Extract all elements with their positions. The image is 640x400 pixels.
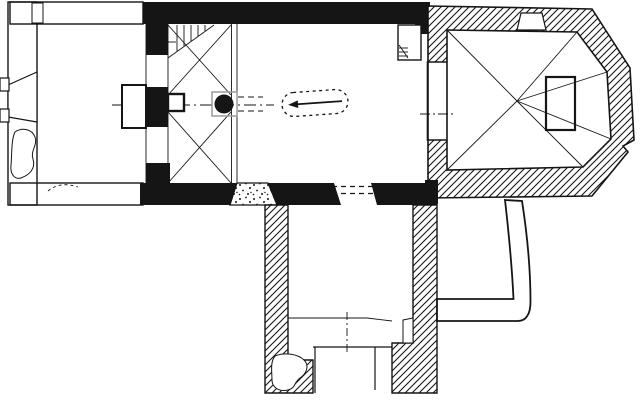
annex-north-opening	[32, 3, 43, 23]
church-floor-plan	[0, 0, 640, 400]
nave-south-wall-west	[140, 183, 237, 205]
chapel-east-recess	[403, 318, 413, 343]
masonry-blob	[11, 129, 36, 178]
corner-stair-niche	[398, 25, 421, 60]
portal-frame-south	[0, 109, 9, 122]
nave-south-door	[230, 183, 277, 205]
tower-arcade-pier-mid	[146, 87, 168, 127]
pier-respond-west	[122, 85, 146, 128]
nave-se-corner-pier	[425, 180, 438, 204]
round-column	[215, 95, 234, 114]
nave-north-wall	[143, 2, 430, 24]
nave-south-wall-mid	[268, 183, 341, 205]
floor-plan-page	[0, 0, 640, 400]
tower-arcade-pier-top	[146, 24, 168, 55]
portal-frame-north	[0, 78, 9, 91]
north-wall-niche	[517, 13, 546, 30]
pier-respond-east	[168, 94, 184, 111]
